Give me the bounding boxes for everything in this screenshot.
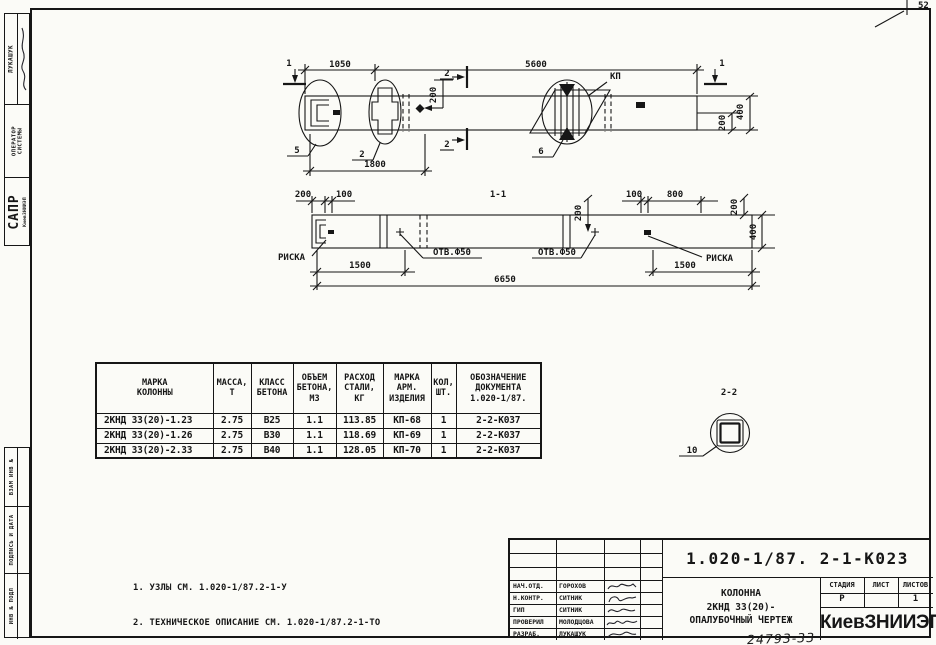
schedule-cell: 118.69 [336, 428, 383, 443]
role-name: ГОРОХОВ [556, 580, 604, 592]
drawing-sheet: 52 ЛУКАШУК ОПЕРАТОР СИСТЕМЫ САПРКиевЗНИИ… [0, 0, 936, 645]
schedule-cell: 2-2-К037 [456, 428, 541, 443]
callout-5: 5 [294, 146, 299, 156]
dim-100-tl: 100 [336, 190, 352, 200]
elevation-view [283, 64, 758, 176]
dim-200-mid: 200 [429, 87, 439, 103]
dim-6650: 6650 [494, 275, 516, 285]
schedule-cell: 1.1 [293, 443, 336, 458]
riska-label-left: РИСКА [278, 253, 306, 263]
role-label: НАЧ.ОТД. [510, 580, 556, 592]
section-1-1-view [296, 194, 775, 290]
drafter-name: ЛУКАШУК [8, 45, 15, 73]
schedule-cell: 2-2-К037 [456, 413, 541, 428]
schedule-cell: 1 [431, 443, 456, 458]
schedule-cell: 2КНД 33(20)-1.26 [96, 428, 213, 443]
signature-scribble [606, 581, 638, 592]
otv-label-left: ОТВ.Ф50 [433, 248, 471, 258]
cut-mark-2-top: 2 [444, 69, 449, 79]
schedule-cell: 2.75 [213, 443, 251, 458]
notes-list: 1. УЗЛЫ СМ. 1.020-1/87.2-1-У 2. ТЕХНИЧЕС… [133, 560, 457, 645]
podpis-data-cell: ПОДПИСЬ И ДАТА [5, 506, 18, 573]
drafter-signature-cell [18, 14, 31, 104]
dim-5600: 5600 [525, 60, 547, 70]
role-label: Н.КОНТР. [510, 592, 556, 604]
line [640, 540, 641, 640]
schedule-header-cell: КЛАСС БЕТОНА [251, 363, 293, 413]
role-label: ПРОВЕРИЛ [510, 616, 556, 628]
sheet-label: ЛИСТ [864, 577, 898, 593]
operator-label: ОПЕРАТОР СИСТЕМЫ [12, 125, 25, 155]
schedule-cell: 1.1 [293, 413, 336, 428]
schedule-cell: 1.1 [293, 428, 336, 443]
elevation-labels: 1050 5600 1800 200 400 200 1 1 2 2 КП 5 … [286, 59, 746, 170]
dim-1050: 1050 [329, 60, 351, 70]
inv-podl-label: ИНВ № ПОДЛ [8, 588, 14, 624]
section-2-2-title: 2-2 [721, 388, 737, 398]
side-stamp-bottom: ВЗАМ ИНВ № ПОДПИСЬ И ДАТА ИНВ № ПОДЛ [4, 447, 30, 638]
sapr-label: САПРКиевЗНИИЭП [8, 194, 28, 229]
schedule-cell: В40 [251, 443, 293, 458]
role-label: ГИП [510, 604, 556, 616]
operator-cell: ОПЕРАТОР СИСТЕМЫ [5, 104, 31, 177]
section-1-1-labels: 1-1 200 100 100 800 200 1500 1500 6650 2… [278, 190, 759, 285]
otv-label-right: ОТВ.Ф50 [538, 248, 576, 258]
sheets-label: ЛИСТОВ [898, 577, 933, 593]
note-item: 1. УЗЛЫ СМ. 1.020-1/87.2-1-У [133, 583, 457, 595]
callout-6: 6 [538, 147, 543, 157]
side-stamp-top: ЛУКАШУК ОПЕРАТОР СИСТЕМЫ САПРКиевЗНИИЭП [4, 13, 30, 246]
vzam-inv-cell: ВЗАМ ИНВ № [5, 448, 18, 506]
inv-podl-cell: ИНВ № ПОДЛ [5, 573, 18, 639]
schedule-cell: 2КНД 33(20)-2.33 [96, 443, 213, 458]
schedule-header-cell: ОБЪЕМ БЕТОНА, М3 [293, 363, 336, 413]
section-1-1-title: 1-1 [490, 190, 506, 200]
dim-400-right: 400 [736, 104, 746, 120]
schedule-header-cell: МАРКА АРМ. ИЗДЕЛИЯ [383, 363, 431, 413]
stage-label: СТАДИЯ [820, 577, 864, 593]
sapr-title: САПР [8, 194, 23, 229]
role-label: РАЗРАБ. [510, 628, 556, 640]
line [510, 567, 662, 568]
kp-label: КП [610, 72, 621, 82]
dim-1500-left: 1500 [349, 261, 371, 271]
signature-scribble [606, 617, 638, 628]
drafter-name-cell: ЛУКАШУК [5, 14, 18, 104]
dim-200-right: 200 [730, 199, 740, 215]
schedule-cell: 2-2-К037 [456, 443, 541, 458]
dim-200-hole: 200 [574, 205, 584, 221]
schedule-header-cell: РАСХОД СТАЛИ, КГ [336, 363, 383, 413]
schedule-cell: КП-70 [383, 443, 431, 458]
dim-200-right: 200 [718, 115, 728, 131]
sheet-value [864, 593, 898, 607]
schedule-cell: 1 [431, 428, 456, 443]
note-item: 2. ТЕХНИЧЕСКОЕ ОПИСАНИЕ СМ. 1.020-1/87.2… [133, 618, 457, 630]
dim-100-tr: 100 [626, 190, 642, 200]
schedule-header-cell: МАССА, Т [213, 363, 251, 413]
schedule-header-cell: МАРКА КОЛОННЫ [96, 363, 213, 413]
role-name: ЛУКАШУК [556, 628, 604, 640]
riska-label-right: РИСКА [706, 254, 734, 264]
role-name: СИТНИК [556, 592, 604, 604]
dim-1500-right: 1500 [674, 261, 696, 271]
schedule-header-cell: КОЛ, ШТ. [431, 363, 456, 413]
dim-200-tl: 200 [295, 190, 311, 200]
signature-scribble [606, 605, 638, 616]
section-2-2-view: 2-2 10 [655, 378, 795, 473]
schedule-row: 2КНД 33(20)-1.26 2.75 В30 1.1 118.69 КП-… [96, 428, 541, 443]
schedule-cell: КП-69 [383, 428, 431, 443]
podpis-data-label: ПОДПИСЬ И ДАТА [8, 514, 14, 565]
role-name: МОЛОДЦОВА [556, 616, 604, 628]
schedule-cell: 128.05 [336, 443, 383, 458]
schedule-header-cell: ОБОЗНАЧЕНИЕ ДОКУМЕНТА 1.020-1/87. [456, 363, 541, 413]
schedule-cell: 113.85 [336, 413, 383, 428]
schedule-cell: В25 [251, 413, 293, 428]
cut-mark-1-left: 1 [286, 59, 291, 69]
cut-mark-2-bottom: 2 [444, 140, 449, 150]
dim-400-right: 400 [749, 224, 759, 240]
schedule-cell: 2.75 [213, 413, 251, 428]
organization-name: КиевЗНИИЭП [820, 607, 933, 640]
schedule-cell: КП-68 [383, 413, 431, 428]
column-schedule-table: МАРКА КОЛОННЫ МАССА, Т КЛАСС БЕТОНА ОБЪЕ… [95, 362, 542, 459]
schedule-cell: 2КНД 33(20)-1.23 [96, 413, 213, 428]
handwritten-archive-number: 24793-33 [747, 630, 816, 645]
corner-mark: 52 [870, 0, 936, 30]
schedule-row: 2КНД 33(20)-1.23 2.75 В25 1.1 113.85 КП-… [96, 413, 541, 428]
sapr-org: КиевЗНИИЭП [23, 194, 28, 229]
callout-10: 10 [687, 446, 698, 456]
dim-1800: 1800 [364, 160, 386, 170]
sheets-value: 1 [898, 593, 933, 607]
role-name: СИТНИК [556, 604, 604, 616]
schedule-header-row: МАРКА КОЛОННЫ МАССА, Т КЛАСС БЕТОНА ОБЪЕ… [96, 363, 541, 413]
signature-scribble [606, 629, 638, 640]
signature-scribble [19, 25, 29, 93]
schedule-cell: 2.75 [213, 428, 251, 443]
column-drawing: 1050 5600 1800 200 400 200 1 1 2 2 КП 5 … [270, 50, 800, 300]
cut-mark-1-right: 1 [719, 59, 724, 69]
sheet-corner-number: 52 [918, 1, 929, 11]
schedule-cell: В30 [251, 428, 293, 443]
schedule-row: 2КНД 33(20)-2.33 2.75 В40 1.1 128.05 КП-… [96, 443, 541, 458]
signature-scribble [606, 593, 638, 604]
title-block: НАЧ.ОТД. ГОРОХОВ Н.КОНТР. СИТНИК ГИП СИТ… [508, 538, 931, 638]
callout-2: 2 [359, 150, 364, 160]
stage-value: Р [820, 593, 864, 607]
schedule-cell: 1 [431, 413, 456, 428]
line [510, 553, 662, 554]
doc-number: 1.020-1/87. 2-1-К023 [662, 540, 933, 577]
dim-800-tr: 800 [667, 190, 683, 200]
sapr-cell: САПРКиевЗНИИЭП [5, 177, 31, 247]
vzam-inv-label: ВЗАМ ИНВ № [8, 459, 14, 495]
